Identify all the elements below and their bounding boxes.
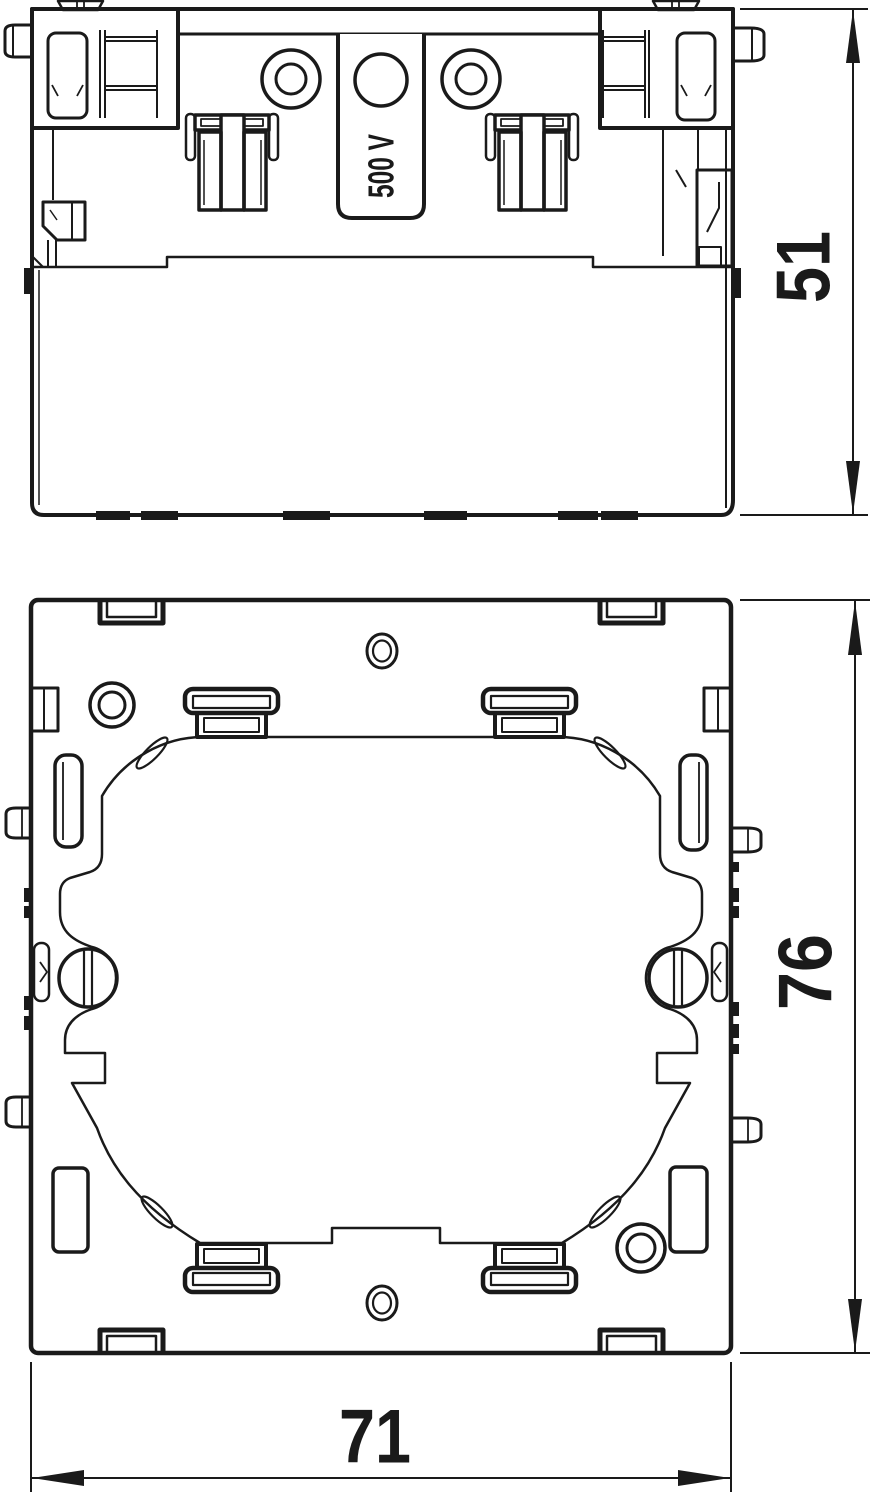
side-right-bracket-dividers: [603, 30, 649, 118]
front-clip-bottom-right: [483, 1244, 576, 1292]
front-edge-serrations: [24, 862, 739, 1054]
drawing-sheet: 500 V: [0, 0, 874, 1500]
front-frame-outline: [31, 600, 731, 1353]
dim-76-arrow-down: [848, 1299, 862, 1352]
front-right-wall-slot-lower: [670, 1167, 707, 1252]
side-voltage-tag: 500 V: [338, 34, 424, 218]
side-right-bracket-bars: [603, 37, 645, 90]
front-right-wall-slot-upper: [680, 755, 707, 850]
front-left-wall-tab: [31, 688, 58, 731]
side-view: 500 V: [5, 1, 764, 520]
dimension-51: 51: [740, 9, 868, 515]
dim-51-arrow-up: [846, 10, 860, 63]
side-left-bracket-bars: [105, 37, 157, 90]
front-left-wall-slot-lower: [53, 1168, 88, 1252]
front-top-slot-right: [600, 602, 663, 623]
side-left-bracket-window: [48, 33, 87, 118]
dim-51-value: 51: [762, 231, 847, 303]
front-fixing-hole-bottom-right: [617, 1224, 665, 1272]
side-contact-clip-left: [186, 114, 278, 210]
side-right-latch: [676, 170, 732, 266]
front-diagonal-lenses: [133, 734, 629, 1231]
side-left-pin: [5, 25, 32, 57]
dim-51-arrow-down: [846, 461, 860, 514]
front-right-pin-lower: [731, 1118, 761, 1142]
front-center-hole-bottom: [367, 1286, 397, 1320]
front-fixing-hole-top-left: [90, 683, 134, 727]
voltage-marking-label: 500 V: [361, 134, 402, 198]
front-top-slot-left: [100, 602, 163, 623]
dim-76-arrow-up: [848, 601, 862, 655]
front-screw-head-left: [59, 949, 117, 1007]
side-right-pin: [733, 28, 764, 61]
technical-drawing-canvas: 500 V: [0, 0, 874, 1500]
side-right-bracket: [600, 9, 733, 128]
front-screw-head-right: [649, 949, 707, 1007]
front-clip-top-right: [483, 689, 576, 737]
dimension-76: 76: [740, 600, 870, 1353]
front-left-pin-upper: [6, 808, 31, 838]
front-clip-bottom-left: [185, 1244, 278, 1292]
side-parting-chamfer: [33, 257, 43, 267]
side-left-window-ticks: [52, 85, 83, 96]
side-right-window-ticks: [681, 85, 711, 96]
dim-71-value: 71: [339, 1395, 411, 1480]
dimension-71: 71: [31, 1362, 731, 1492]
dim-76-value: 76: [764, 934, 849, 1010]
front-center-hole-top: [367, 634, 397, 668]
side-left-hook: [43, 202, 85, 267]
front-left-wall-slot-upper: [55, 755, 82, 847]
side-left-nub: [24, 268, 32, 294]
side-contact-clip-right: [486, 114, 578, 210]
front-left-pin-lower: [6, 1097, 31, 1127]
side-parting-line: [32, 257, 733, 267]
front-device-opening: [60, 737, 702, 1243]
front-right-wall-tab: [704, 688, 731, 731]
side-left-bracket-dividers: [100, 30, 157, 118]
side-screw-hole-left: [262, 50, 320, 108]
dim-71-arrow-left: [32, 1470, 84, 1486]
front-right-pin-upper: [731, 828, 761, 852]
front-bottom-slot-right: [600, 1330, 663, 1351]
front-clip-top-left: [185, 689, 278, 737]
side-screw-hole-right: [442, 50, 500, 108]
side-right-bracket-window: [677, 33, 715, 120]
front-right-latch-pocket: [712, 943, 727, 1001]
front-view: [6, 600, 761, 1353]
dim-71-arrow-right: [678, 1470, 730, 1486]
front-left-latch-pocket: [34, 943, 49, 1001]
front-bottom-slot-left: [100, 1330, 163, 1351]
side-right-nub: [733, 268, 741, 298]
